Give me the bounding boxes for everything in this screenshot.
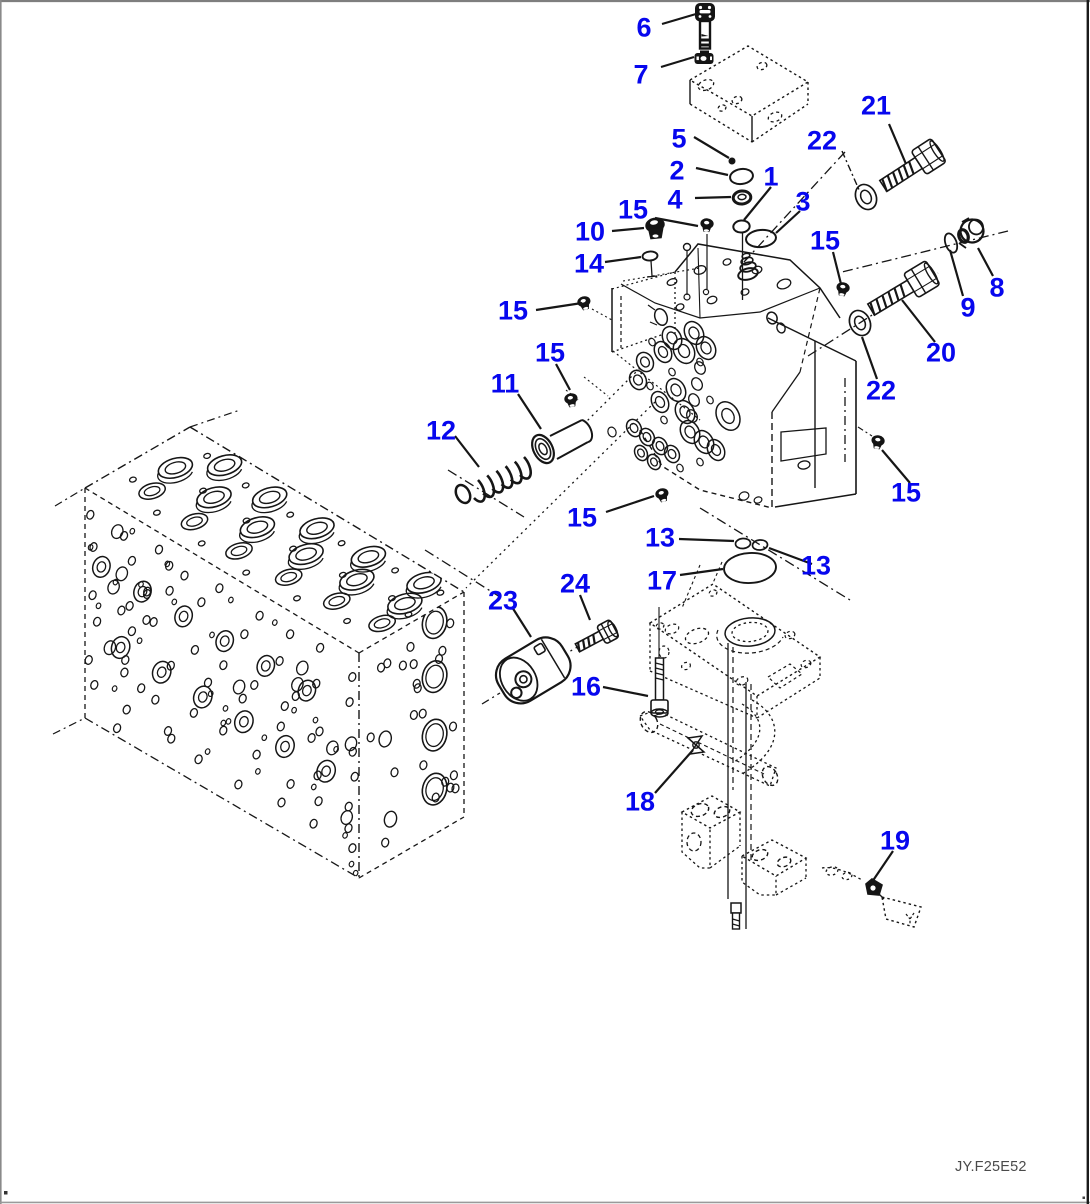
svg-text:15: 15 xyxy=(618,195,648,225)
svg-text:23: 23 xyxy=(488,586,518,616)
svg-text:16: 16 xyxy=(571,672,601,702)
svg-text:15: 15 xyxy=(810,226,840,256)
svg-text:15: 15 xyxy=(891,478,921,508)
svg-text:2: 2 xyxy=(669,156,684,186)
svg-text:19: 19 xyxy=(880,826,910,856)
svg-text:JY.F25E52: JY.F25E52 xyxy=(955,1159,1027,1175)
svg-text:5: 5 xyxy=(671,124,686,154)
svg-text:1: 1 xyxy=(763,162,778,192)
svg-text:7: 7 xyxy=(633,60,648,90)
svg-text:12: 12 xyxy=(426,416,456,446)
svg-text:3: 3 xyxy=(795,187,810,217)
svg-text:6: 6 xyxy=(636,13,651,43)
svg-text:20: 20 xyxy=(926,338,956,368)
svg-text:9: 9 xyxy=(960,293,975,323)
svg-text:17: 17 xyxy=(647,566,677,596)
svg-text:14: 14 xyxy=(574,249,604,279)
svg-text:15: 15 xyxy=(567,503,597,533)
svg-text:22: 22 xyxy=(866,376,896,406)
svg-text:8: 8 xyxy=(989,273,1004,303)
svg-text:15: 15 xyxy=(535,338,565,368)
svg-text:4: 4 xyxy=(667,185,682,215)
svg-text:15: 15 xyxy=(498,296,528,326)
svg-text:10: 10 xyxy=(575,217,605,247)
svg-text:22: 22 xyxy=(807,126,837,156)
svg-text:21: 21 xyxy=(861,91,891,121)
svg-text:13: 13 xyxy=(645,523,675,553)
svg-text:11: 11 xyxy=(491,369,520,399)
svg-text:18: 18 xyxy=(625,787,655,817)
svg-text:13: 13 xyxy=(801,551,831,581)
svg-text:24: 24 xyxy=(560,569,590,599)
